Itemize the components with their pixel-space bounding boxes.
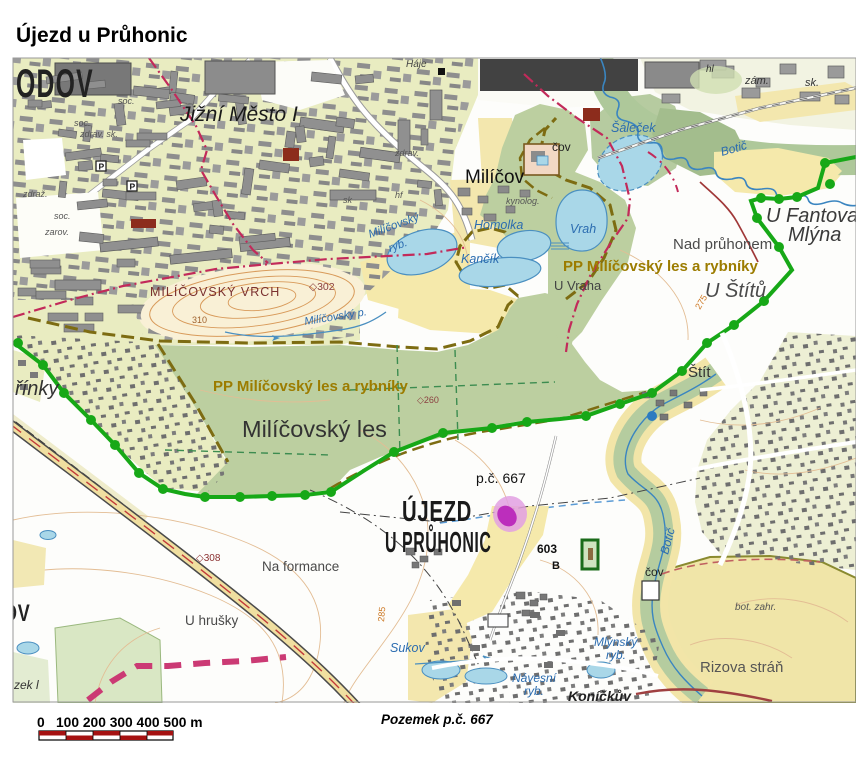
svg-text:Milíčov: Milíčov (465, 167, 525, 188)
svg-text:čov: čov (645, 565, 664, 579)
svg-text:p.č. 667: p.č. 667 (476, 470, 526, 486)
svg-text:kynolog.: kynolog. (506, 196, 540, 206)
svg-text:soc.: soc. (74, 118, 91, 128)
svg-text:zdrav. sk.: zdrav. sk. (79, 129, 118, 139)
svg-text:100 200 300 400 500 m: 100 200 300 400 500 m (56, 715, 203, 730)
svg-text:310: 310 (192, 315, 207, 325)
svg-text:Vrah: Vrah (570, 222, 596, 236)
svg-text:soc.: soc. (54, 211, 71, 221)
svg-text:zám.: zám. (744, 75, 769, 87)
svg-text:zek l: zek l (13, 678, 39, 692)
svg-text:U Vraha: U Vraha (554, 278, 602, 293)
svg-text:zdraž.: zdraž. (22, 189, 48, 199)
svg-text:Sukov: Sukov (390, 641, 425, 655)
svg-text:soc.: soc. (118, 96, 135, 106)
svg-text:hl: hl (706, 64, 715, 75)
svg-text:PP Milíčovský les a rybníky: PP Milíčovský les a rybníky (563, 258, 758, 275)
svg-text:U Štítů: U Štítů (705, 279, 766, 302)
svg-text:sk: sk (343, 195, 353, 205)
svg-text:Homolka: Homolka (474, 218, 523, 232)
svg-text:◇260: ◇260 (417, 395, 439, 405)
svg-text:Kančík: Kančík (461, 252, 500, 266)
svg-text:B: B (552, 560, 560, 572)
svg-text:sk.: sk. (805, 77, 819, 89)
svg-text:◇308: ◇308 (196, 553, 221, 564)
svg-text:Jižní Město I: Jižní Město I (179, 103, 298, 126)
svg-text:ODOV: ODOV (16, 62, 94, 106)
svg-text:◇302: ◇302 (309, 281, 335, 293)
svg-text:U hrušky: U hrušky (185, 613, 239, 628)
svg-text:PP Milíčovský les a rybníky: PP Milíčovský les a rybníky (213, 378, 408, 395)
svg-text:Nad průhonem: Nad průhonem (673, 236, 772, 253)
svg-text:Rizova stráň: Rizova stráň (700, 659, 783, 676)
svg-text:čov: čov (552, 140, 571, 154)
svg-text:Na formance: Na formance (262, 559, 339, 574)
svg-text:řínky: řínky (15, 378, 59, 400)
svg-text:P: P (99, 162, 105, 172)
svg-text:285: 285 (376, 606, 387, 622)
svg-text:Pozemek p.č. 667: Pozemek p.č. 667 (381, 712, 494, 727)
svg-text:MILÍČOVSKÝ VRCH: MILÍČOVSKÝ VRCH (150, 284, 280, 299)
svg-text:zdrav.: zdrav. (394, 148, 419, 158)
svg-text:603: 603 (537, 542, 557, 556)
svg-text:Mlýna: Mlýna (788, 224, 841, 246)
svg-text:Háje: Háje (406, 59, 427, 70)
svg-text:Šáleček: Šáleček (611, 120, 656, 135)
svg-text:0: 0 (37, 715, 45, 730)
svg-text:zarov.: zarov. (44, 227, 69, 237)
svg-text:ryb.: ryb. (524, 684, 544, 698)
svg-text:Mlýnský: Mlýnský (594, 635, 638, 649)
svg-text:U PRŮHONIC: U PRŮHONIC (385, 522, 491, 558)
svg-text:ryb.: ryb. (606, 648, 626, 662)
svg-text:P: P (130, 182, 136, 192)
svg-text:Štít: Štít (688, 364, 711, 381)
svg-text:Návesní: Návesní (512, 671, 558, 685)
svg-text:Újezd u Průhonic: Újezd u Průhonic (16, 23, 188, 47)
svg-text:bot. zahr.: bot. zahr. (735, 602, 776, 613)
svg-text:Milíčovský les: Milíčovský les (242, 416, 387, 442)
svg-text:ÚJEZD: ÚJEZD (402, 493, 472, 528)
